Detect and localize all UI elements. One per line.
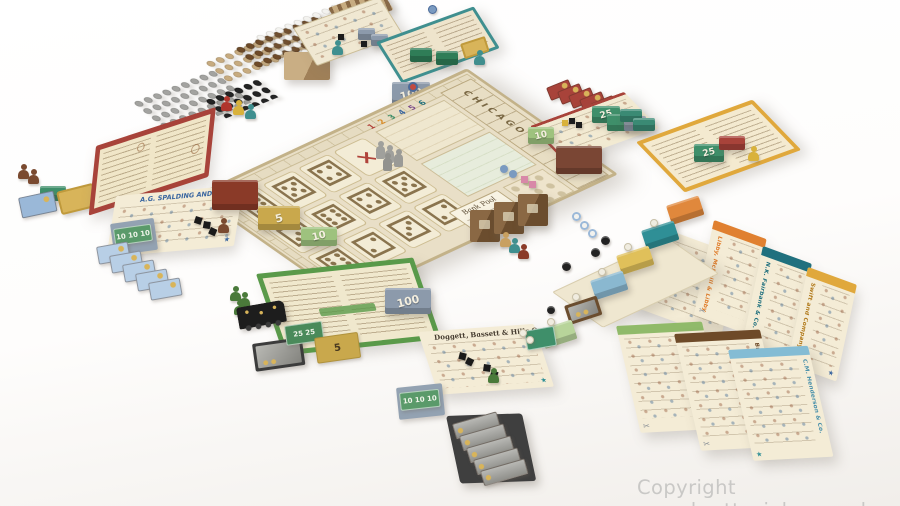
brown-money-stack	[556, 146, 602, 174]
black-disc	[591, 248, 600, 257]
white-chip	[624, 243, 632, 251]
round-token	[428, 5, 437, 14]
white-chip	[650, 219, 658, 227]
note-label: 10 10 10	[116, 228, 151, 241]
mat-icon-rows	[807, 285, 850, 368]
scissors-icon: ✂	[642, 421, 651, 430]
star-icon: ★	[223, 235, 231, 244]
money-10-label: 10	[526, 124, 555, 147]
phase-number: 5	[405, 103, 418, 111]
brown-meeple	[218, 224, 229, 233]
yellow-manager-meeple	[233, 106, 244, 115]
gold-note-5: 5	[314, 332, 361, 364]
black-disc	[562, 262, 571, 271]
phase-number: 2	[375, 118, 388, 126]
photo-scene: 100 ⚅ ⚄ ⚃ × ⚂ ⚅ ⚃ ⚄ ⚅ ⚁ ⚂ ⚁ 1 2 3 4 5 6	[0, 0, 900, 506]
white-chip	[519, 329, 527, 337]
aid-text-lines	[152, 120, 207, 186]
white-chip	[547, 318, 555, 326]
black-disc	[547, 306, 555, 314]
dark-red-money-stack	[212, 180, 258, 210]
green-meeple	[488, 374, 499, 383]
teal-meeple	[332, 46, 343, 55]
teal-meeple	[474, 56, 485, 65]
green-money-stack	[436, 51, 458, 65]
money-stack-5: 5	[258, 206, 300, 230]
note-label: 5	[333, 342, 341, 354]
black-disc	[601, 236, 610, 245]
gray-pawn	[383, 158, 392, 171]
star-icon: ★	[827, 368, 835, 378]
phase-number: 3	[385, 113, 398, 121]
note-label: 10 10 10	[402, 394, 437, 406]
brown-meeple	[28, 175, 39, 184]
pink-cube	[529, 181, 536, 188]
star-icon: ★	[755, 450, 763, 458]
money-stack-10: 10	[301, 227, 337, 246]
goods-crate	[518, 194, 548, 226]
black-cube	[338, 34, 344, 40]
blue-numbered-chip	[580, 221, 589, 230]
round-token	[408, 82, 418, 92]
red-manager-meeple	[221, 102, 232, 111]
teal-manager-meeple	[245, 110, 256, 119]
red-money-stack	[719, 136, 745, 150]
blue-card	[18, 191, 58, 219]
note-label: 25 25	[293, 328, 316, 339]
blue-cylinder	[500, 165, 508, 173]
star-icon: ★	[539, 376, 548, 384]
green-money-stack	[410, 48, 432, 62]
money-100-label: 100	[383, 283, 434, 319]
black-cube	[483, 364, 491, 372]
yellow-meeple	[748, 152, 759, 161]
white-chip	[598, 268, 606, 276]
blue-numbered-chip	[588, 229, 597, 238]
blue-stock-card	[148, 277, 183, 300]
black-cube	[361, 41, 367, 47]
black-cube	[569, 118, 575, 124]
yellow-cube	[562, 120, 568, 126]
black-cube	[576, 122, 582, 128]
blue-cylinder	[509, 170, 517, 178]
red-meeple-on-track	[518, 250, 529, 259]
white-chip	[572, 293, 580, 301]
white-chip	[526, 336, 534, 344]
teal-tile-stack	[633, 118, 655, 131]
blue-numbered-chip	[572, 212, 581, 221]
scissors-icon: ✂	[702, 439, 711, 448]
money-stack-100: 100	[385, 288, 431, 314]
gray-pawn	[376, 146, 385, 159]
pink-cube	[521, 176, 528, 183]
money-5-label: 5	[256, 201, 303, 234]
money-stack-10: 10	[528, 127, 554, 144]
scissors-icon: ✂	[698, 305, 706, 316]
phase-number: 4	[395, 108, 408, 116]
watermark-text: Copyright www.brettspiel-news.de	[637, 476, 900, 506]
gray-pawn	[394, 154, 403, 167]
